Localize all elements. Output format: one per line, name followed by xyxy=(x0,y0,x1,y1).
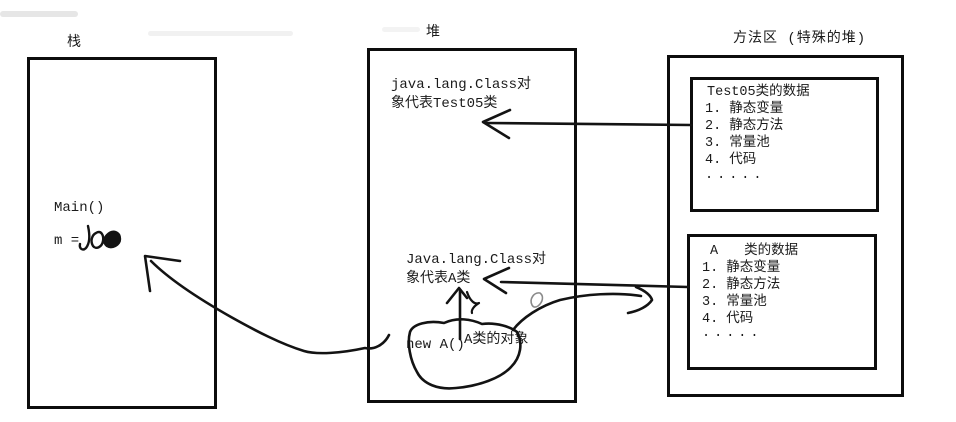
stack-variable-label: m = xyxy=(54,232,79,251)
heap-object-label: A类的对象 xyxy=(464,331,528,350)
faint-smudge-top-left xyxy=(0,11,78,17)
a-data-item-3: 3. 常量池 xyxy=(702,294,767,311)
heap-a-class-object-line2: 象代表A类 xyxy=(406,270,470,289)
test05-data-item-1: 1. 静态变量 xyxy=(705,101,783,118)
heap-new-expression: new A() xyxy=(406,336,465,355)
test05-class-data-title: Test05类的数据 xyxy=(707,84,810,101)
a-data-item-1: 1. 静态变量 xyxy=(702,260,780,277)
stack-zone-label: 栈 xyxy=(67,31,82,51)
test05-data-item-2: 2. 静态方法 xyxy=(705,118,783,135)
a-class-data-title: A类的数据 xyxy=(710,243,798,260)
a-class-data-title-prefix: A xyxy=(710,244,718,259)
test05-data-item-3: 3. 常量池 xyxy=(705,135,770,152)
heap-test05-class-object-line2: 象代表Test05类 xyxy=(391,95,497,114)
a-data-ellipsis: ..... xyxy=(702,325,763,342)
method-area-zone-label: 方法区 (特殊的堆) xyxy=(733,27,866,47)
heap-a-class-object-line1: Java.lang.Class对 xyxy=(406,251,546,270)
faint-smudge-top-mid xyxy=(148,31,293,36)
stack-frame-label: Main() xyxy=(54,199,104,218)
heap-test05-class-object-line1: java.lang.Class对 xyxy=(391,76,531,95)
a-data-item-2: 2. 静态方法 xyxy=(702,277,780,294)
jvm-memory-diagram: 栈 堆 方法区 (特殊的堆) Main() m = java.lang.Clas… xyxy=(0,0,956,422)
heap-zone-label: 堆 xyxy=(426,21,441,41)
a-class-data-title-suffix: 类的数据 xyxy=(744,243,798,260)
test05-data-ellipsis: ..... xyxy=(705,167,766,184)
faint-smudge-heap-label xyxy=(382,27,420,32)
